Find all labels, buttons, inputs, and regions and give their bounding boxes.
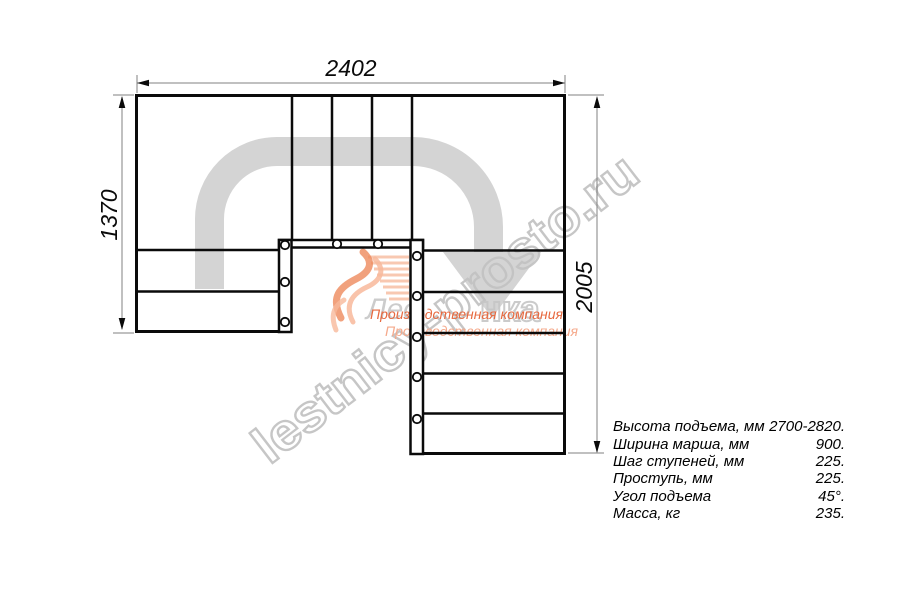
dimension-label-right: 2005: [571, 261, 597, 313]
spec-value: 900.: [816, 436, 845, 453]
company-tagline-1: Производственная компания: [370, 306, 564, 322]
spec-row: Высота подъема, мм 2700-2820.: [613, 418, 845, 435]
joint-circle: [413, 252, 421, 260]
joint-circle: [281, 278, 289, 286]
dimension-label-top: 2402: [324, 55, 376, 81]
spec-value: 225.: [816, 470, 845, 487]
spec-row: Угол подъема 45°.: [613, 488, 845, 505]
arrow-down-icon: [594, 441, 601, 453]
spec-label: Высота подъема, мм: [613, 418, 765, 435]
joint-circle: [413, 292, 421, 300]
spec-value: 235.: [816, 505, 845, 522]
spec-row: Проступь, мм 225.: [613, 470, 845, 487]
spec-row: Шаг ступеней, мм 225.: [613, 453, 845, 470]
arrow-down-icon: [119, 318, 126, 330]
arrow-up-icon: [119, 96, 126, 108]
stair-plan-drawing: lestnicy-prosto.ru Лес нка Производствен…: [0, 0, 900, 600]
joint-circle: [413, 415, 421, 423]
arrow-up-icon: [594, 96, 601, 108]
top-flight-steps: [292, 95, 412, 240]
spec-label: Шаг ступеней, мм: [613, 453, 744, 470]
spec-label: Масса, кг: [613, 505, 680, 522]
spec-label: Проступь, мм: [613, 470, 713, 487]
specs-table: Высота подъема, мм 2700-2820. Ширина мар…: [613, 418, 845, 522]
spec-value: 2700-2820.: [769, 418, 845, 435]
dimension-label-left: 1370: [96, 189, 122, 240]
landing-top-stringer: [279, 240, 423, 248]
joint-circle: [333, 240, 341, 248]
walk-line-band: [210, 152, 489, 290]
joint-circle: [413, 373, 421, 381]
logo-flame-icon: [336, 252, 369, 318]
arrow-left-icon: [137, 80, 149, 87]
joint-circle: [281, 318, 289, 326]
spec-label: Ширина марша, мм: [613, 436, 749, 453]
spec-row: Масса, кг 235.: [613, 505, 845, 522]
joint-circle: [374, 240, 382, 248]
spec-value: 45°.: [818, 488, 845, 505]
spec-row: Ширина марша, мм 900.: [613, 435, 845, 452]
spec-label: Угол подъема: [613, 488, 711, 505]
joint-circle: [413, 333, 421, 341]
arrow-right-icon: [553, 80, 565, 87]
spec-value: 225.: [816, 453, 845, 470]
joint-circle: [281, 241, 289, 249]
